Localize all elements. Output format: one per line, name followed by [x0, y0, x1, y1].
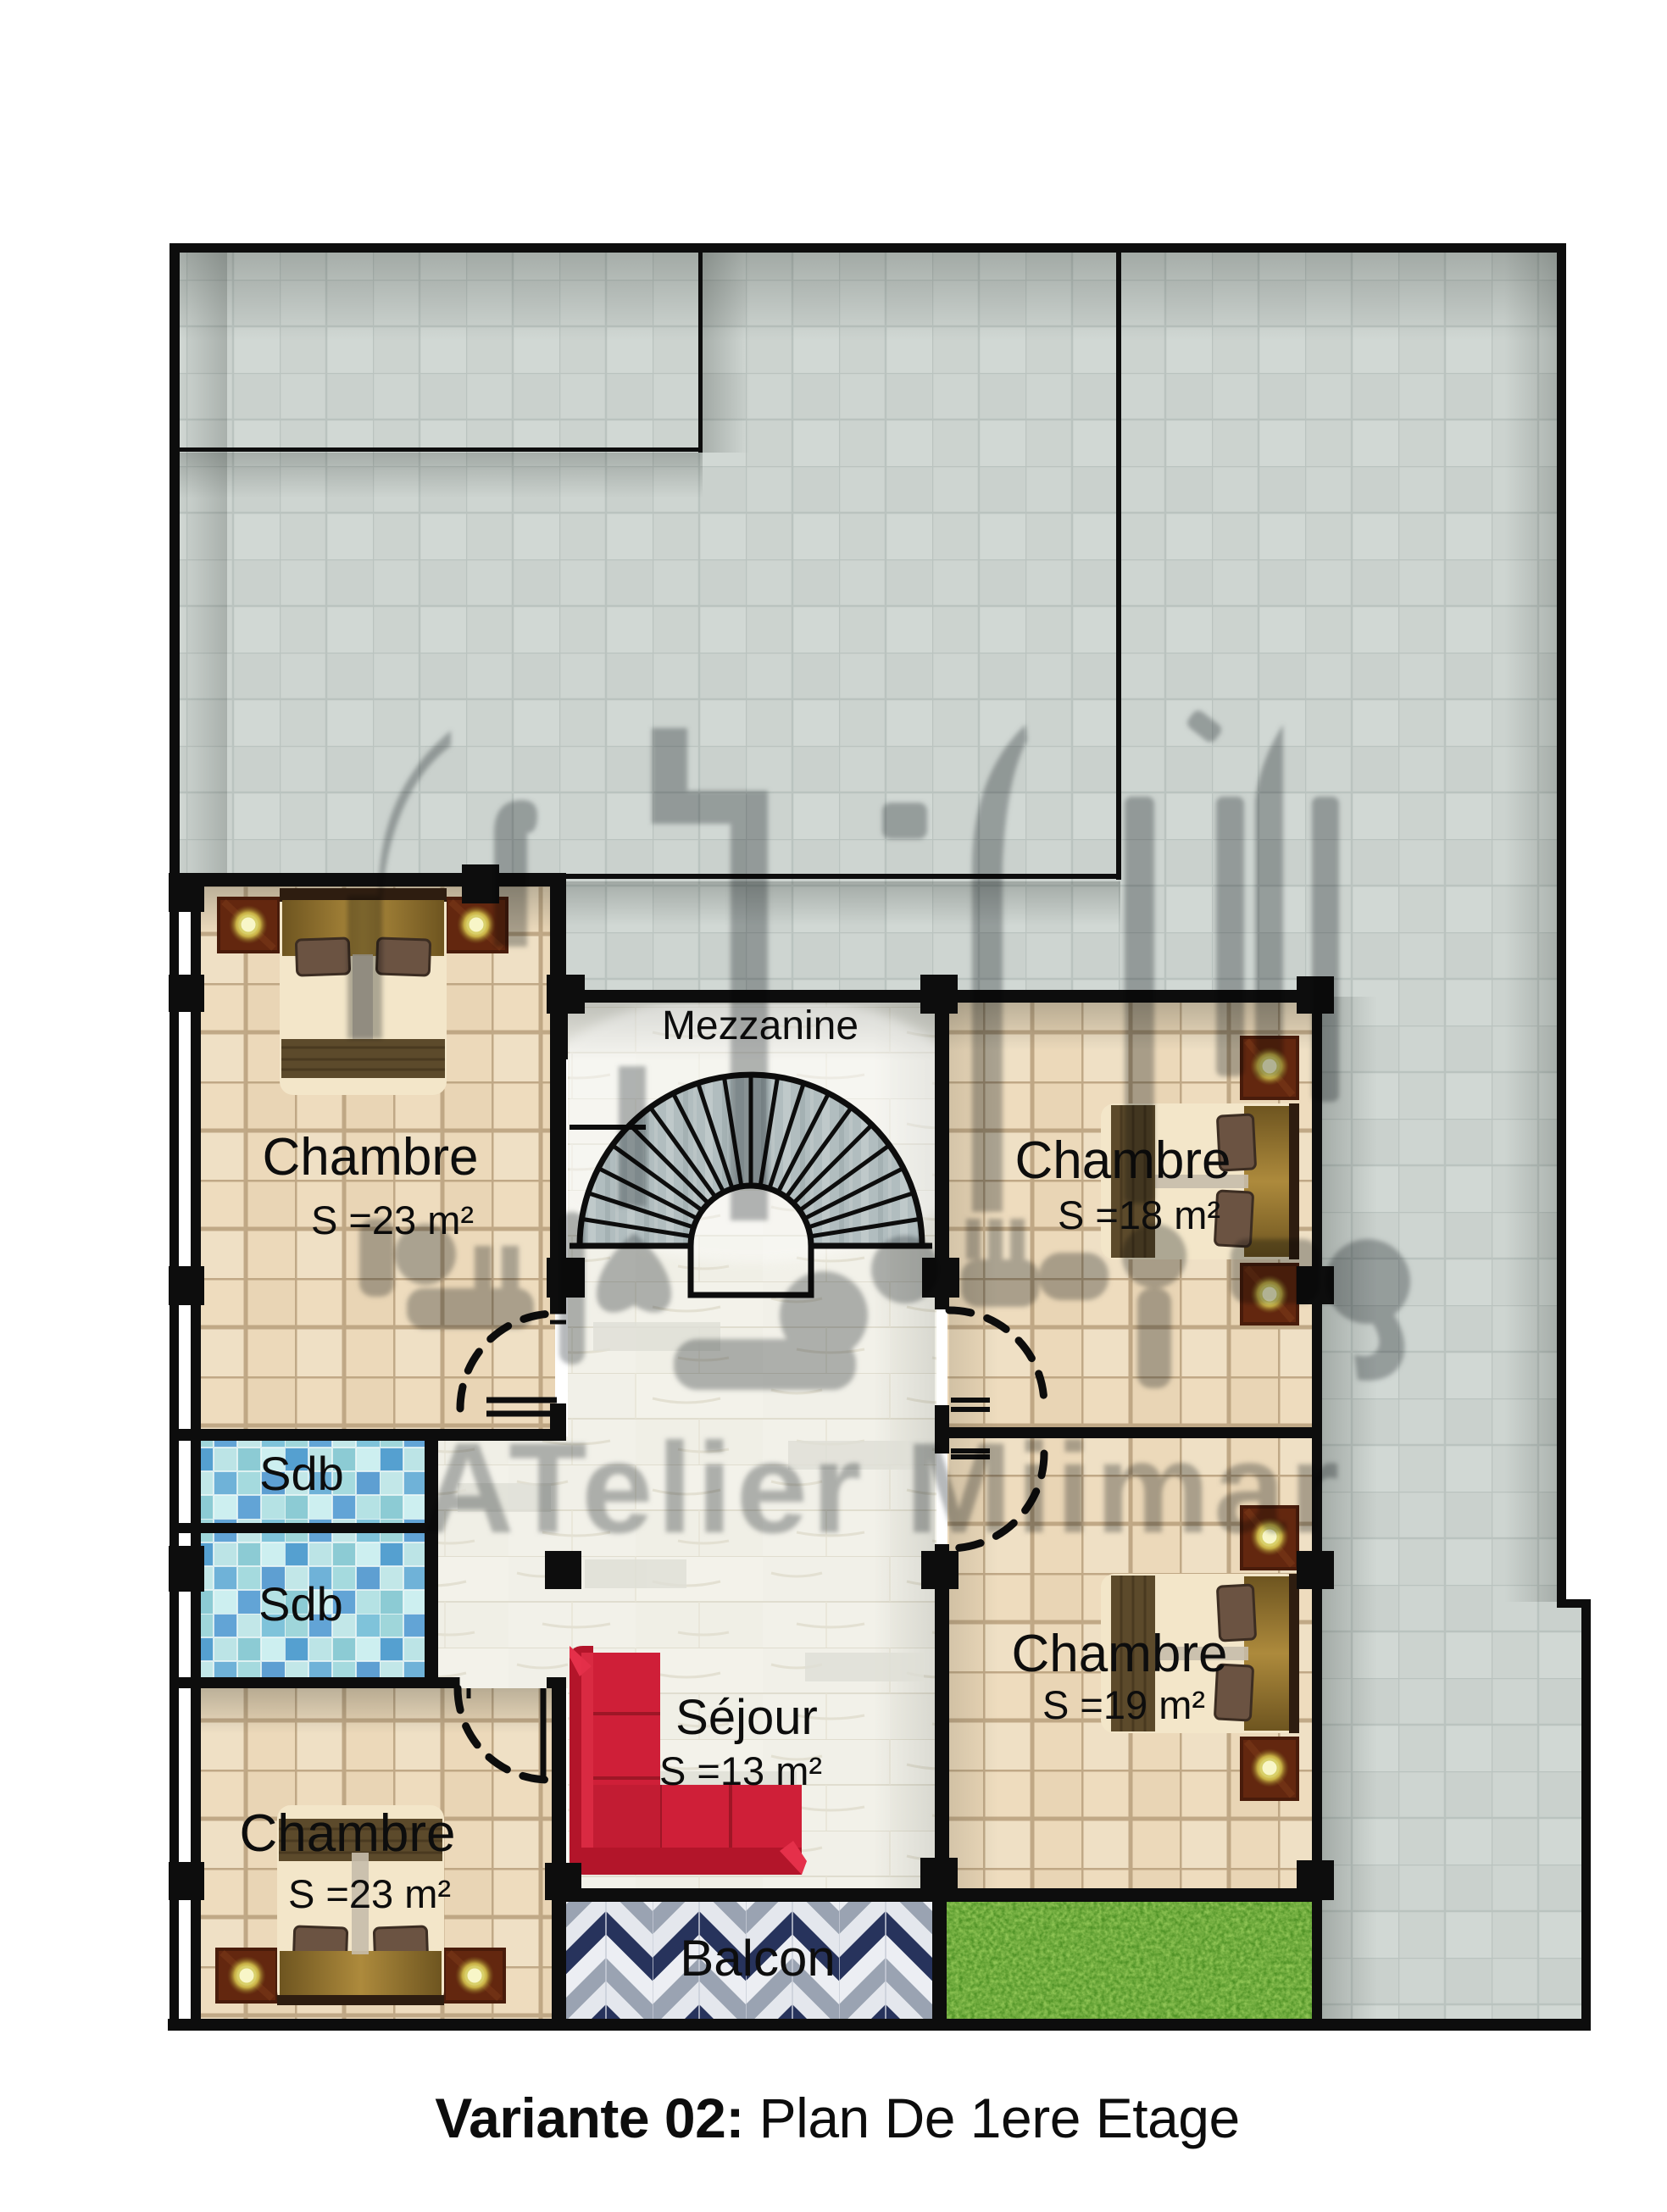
- svg-text:Chambre: Chambre: [1012, 1625, 1228, 1683]
- svg-text:Séjour: Séjour: [675, 1690, 818, 1745]
- svg-text:Chambre: Chambre: [263, 1128, 479, 1187]
- svg-text:Chambre: Chambre: [1015, 1131, 1231, 1190]
- svg-text:Chambre: Chambre: [240, 1804, 456, 1863]
- svg-text:Sdb: Sdb: [259, 1447, 344, 1500]
- svg-text:Sdb: Sdb: [258, 1577, 343, 1631]
- svg-text:S =23 m²: S =23 m²: [288, 1871, 451, 1916]
- svg-text:S =19 m²: S =19 m²: [1042, 1682, 1205, 1727]
- svg-text:S =13 m²: S =13 m²: [659, 1748, 822, 1793]
- svg-text:Balcon: Balcon: [680, 1930, 835, 1987]
- svg-text:Variante 02: Plan De 1ere Etag: Variante 02: Plan De 1ere Etage: [435, 2087, 1239, 2149]
- svg-text:ATelier Miimar: ATelier Miimar: [421, 1416, 1343, 1560]
